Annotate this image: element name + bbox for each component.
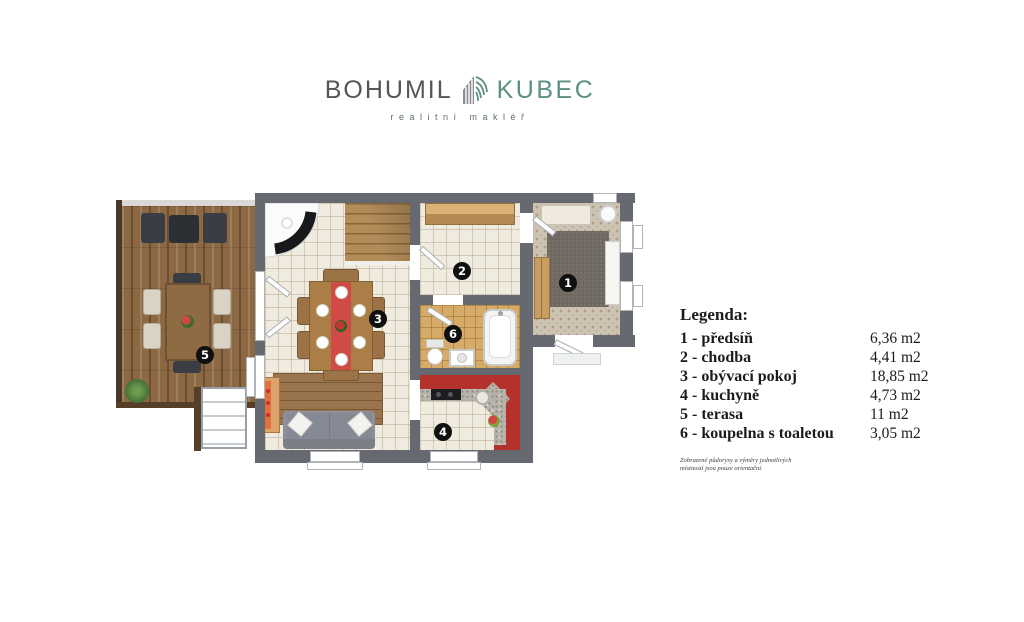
room-badge-kitchen: 4 — [434, 423, 452, 441]
room-badge-terrace: 5 — [196, 346, 214, 364]
terrace-armchair — [141, 213, 165, 243]
toilet-bowl — [427, 348, 443, 365]
legend-room-area: 6,36 m2 — [870, 329, 921, 348]
sideboard-knob — [266, 401, 270, 405]
legend-row: 1 - předsíň 6,36 m2 — [680, 329, 960, 348]
cooktop-burner — [448, 392, 453, 397]
legend-row: 5 - terasa 11 m2 — [680, 405, 960, 424]
dinner-plate — [335, 353, 348, 366]
legend: Legenda: 1 - předsíň 6,36 m2 2 - chodba … — [680, 305, 960, 473]
fruit-bowl — [488, 415, 500, 427]
legend-room-label: 3 - obývací pokoj — [680, 367, 870, 386]
wall — [410, 420, 420, 463]
disclaimer: Zobrazené půdorysy a výměry jednotlivých… — [680, 457, 960, 473]
legend-room-area: 4,73 m2 — [870, 386, 921, 405]
toilet-tank — [426, 339, 444, 348]
wall — [420, 368, 520, 375]
sideboard-knob — [266, 413, 270, 417]
corner-fireplace — [265, 203, 325, 263]
window — [430, 451, 478, 462]
sink-basin — [457, 353, 467, 363]
wall — [520, 243, 533, 335]
disclaimer-line: místností jsou pouze orientační. — [680, 465, 960, 473]
legend-room-area: 3,05 m2 — [870, 424, 921, 443]
french-door-window — [255, 271, 265, 341]
wall — [520, 335, 555, 347]
legend-room-area: 11 m2 — [870, 405, 909, 424]
legend-room-label: 5 - terasa — [680, 405, 870, 424]
window — [255, 355, 265, 399]
plant — [125, 379, 149, 403]
window-sill — [427, 462, 481, 470]
room-badge-entry: 1 — [559, 274, 577, 292]
dinner-plate — [316, 304, 329, 317]
legend-row: 3 - obývací pokoj 18,85 m2 — [680, 367, 960, 386]
legend-title: Legenda: — [680, 305, 960, 325]
stair-railing — [345, 261, 410, 265]
floor-plan: 1 2 3 4 5 6 — [115, 185, 660, 485]
legend-room-area: 4,41 m2 — [870, 348, 921, 367]
exterior-steps — [201, 387, 247, 449]
legend-row: 6 - koupelna s toaletou 3,05 m2 — [680, 424, 960, 443]
disclaimer-line: Zobrazené půdorysy a výměry jednotlivých — [680, 457, 960, 465]
window — [620, 221, 633, 253]
wardrobe-door-seam — [541, 257, 542, 319]
entry-bench — [541, 205, 591, 225]
terrace-chair — [143, 289, 161, 315]
logo-subtitle: realitní makléř — [300, 112, 620, 122]
steps-side-wall — [194, 387, 201, 451]
legend-row: 2 - chodba 4,41 m2 — [680, 348, 960, 367]
wall — [410, 193, 420, 245]
logo-text-kubec: KUBEC — [497, 76, 596, 105]
staircase — [345, 203, 410, 263]
window-sill — [246, 357, 255, 397]
window — [593, 193, 617, 203]
legend-room-label: 4 - kuchyně — [680, 386, 870, 405]
sofa-backrest — [283, 439, 375, 449]
terrace-chair — [213, 289, 231, 315]
bathtub-faucet — [498, 311, 503, 316]
flower-decoration — [181, 315, 194, 328]
window-sill — [307, 462, 363, 470]
logo-text-bohumil: BOHUMIL — [325, 76, 453, 105]
terrace-chair — [213, 323, 231, 349]
wardrobe — [534, 257, 550, 319]
bathtub-basin — [489, 315, 511, 358]
hallway-bench — [425, 203, 515, 225]
terrace-chair — [143, 323, 161, 349]
entry-cabinet — [605, 241, 620, 305]
wall — [593, 335, 635, 347]
wall — [420, 295, 433, 305]
window — [310, 451, 360, 462]
window-sill — [633, 285, 643, 307]
wall — [463, 295, 520, 305]
dinner-plate — [335, 286, 348, 299]
room-badge-living: 3 — [369, 310, 387, 328]
kitchen-sink — [475, 390, 490, 405]
wall — [620, 193, 633, 221]
wall — [255, 193, 265, 271]
room-badge-bathroom: 6 — [444, 325, 462, 343]
dinner-plate — [316, 336, 329, 349]
legend-row: 4 - kuchyně 4,73 m2 — [680, 386, 960, 405]
legend-room-label: 1 - předsíň — [680, 329, 870, 348]
legend-room-label: 2 - chodba — [680, 348, 870, 367]
table-centerpiece — [335, 320, 347, 332]
terrace-end-chair — [173, 361, 201, 373]
terrace-lounge-table — [169, 215, 199, 243]
logo-row: BOHUMIL KUBEC — [300, 74, 620, 106]
wall — [410, 280, 420, 380]
room-badge-hallway: 2 — [453, 262, 471, 280]
wall — [520, 193, 533, 213]
wall — [520, 347, 533, 463]
logo: BOHUMIL KUBEC realitní makléř — [300, 74, 620, 122]
wall — [620, 253, 633, 281]
wall — [255, 341, 265, 355]
legend-room-label: 6 - koupelna s toaletou — [680, 424, 870, 443]
dinner-plate — [353, 304, 366, 317]
wall — [255, 450, 533, 463]
building-fan-icon — [460, 74, 490, 106]
wall — [255, 193, 635, 203]
sideboard-knob — [266, 389, 270, 393]
page: BOHUMIL KUBEC realitní makléř — [0, 0, 1024, 622]
entry-rug — [547, 231, 609, 307]
terrace-armchair — [203, 213, 227, 243]
entry-doormat — [553, 353, 601, 365]
window-sill — [633, 225, 643, 249]
window — [620, 281, 633, 311]
legend-room-area: 18,85 m2 — [870, 367, 929, 386]
cooktop-burner — [436, 392, 441, 397]
round-mirror — [599, 205, 617, 223]
dinner-plate — [353, 336, 366, 349]
